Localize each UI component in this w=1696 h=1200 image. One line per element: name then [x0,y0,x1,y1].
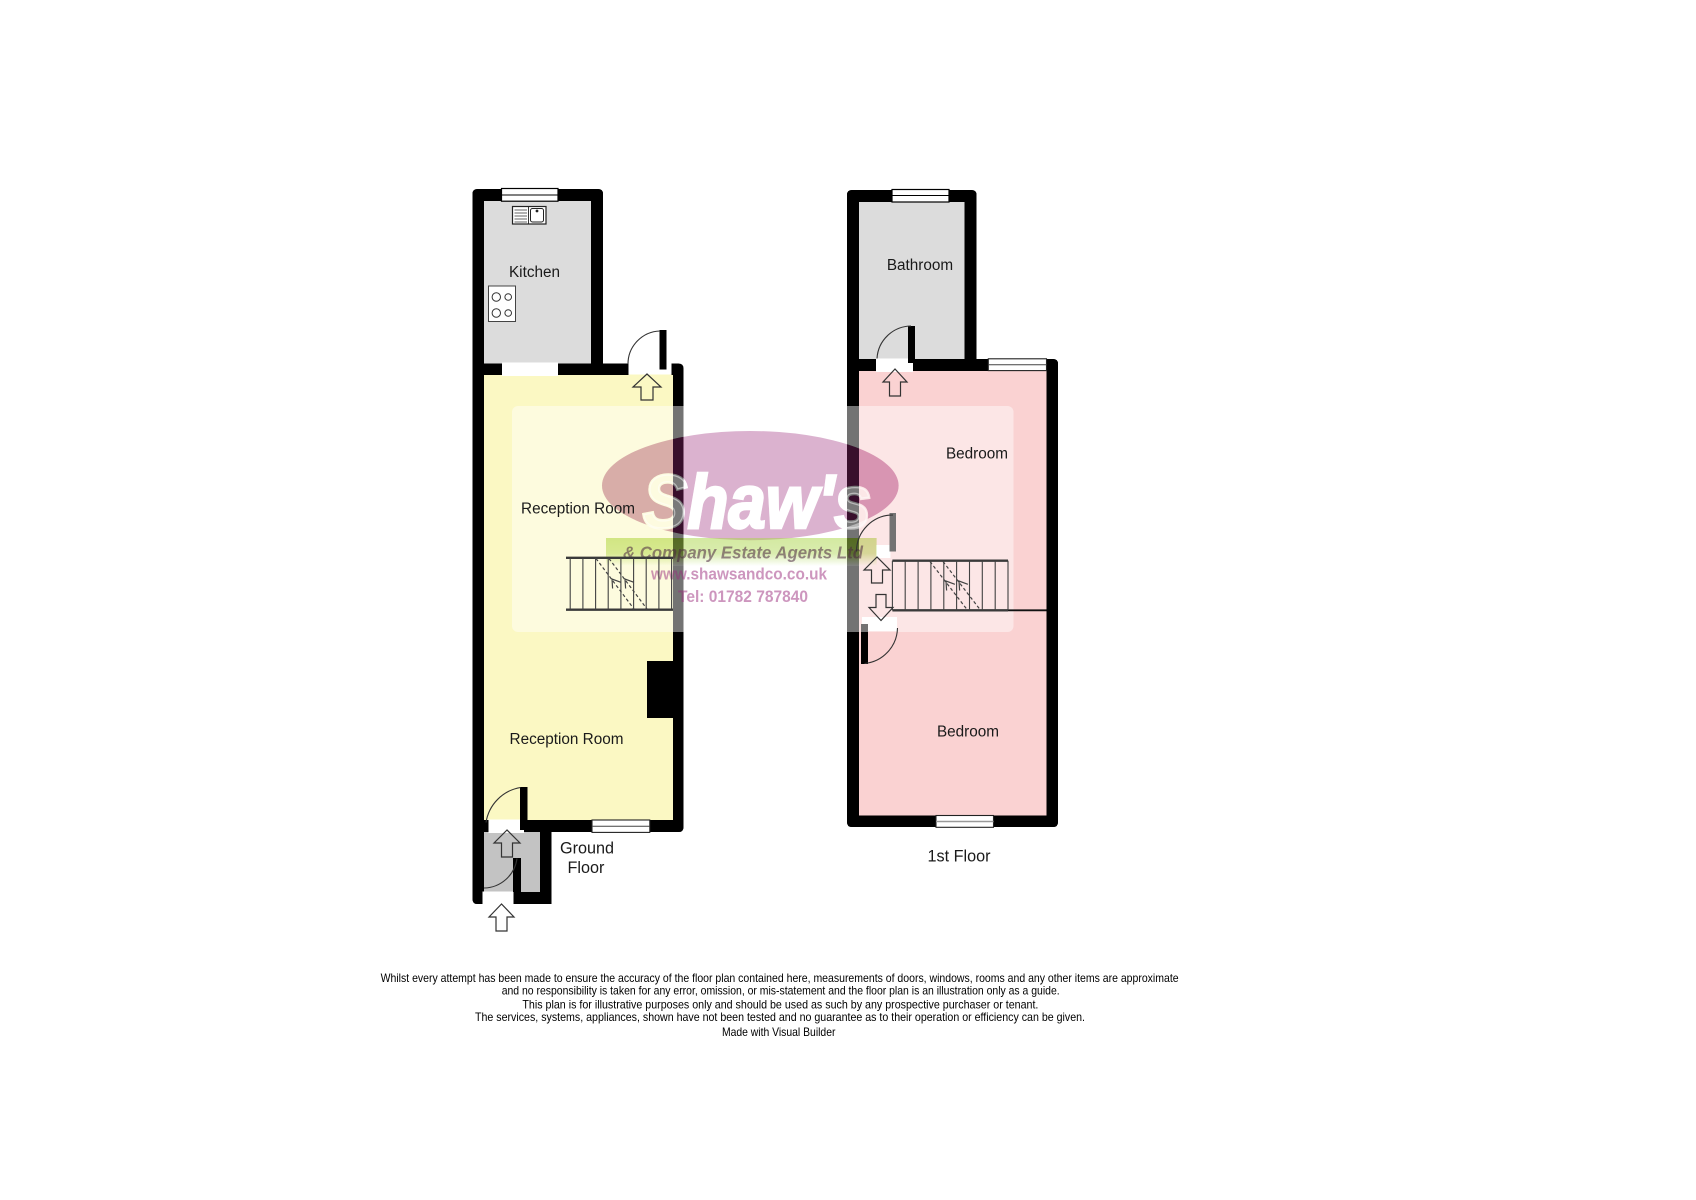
svg-text:Reception Room: Reception Room [510,731,624,748]
svg-text:Shaw's: Shaw's [643,460,872,545]
svg-text:Kitchen: Kitchen [509,264,560,281]
svg-text:Ground: Ground [560,840,614,858]
svg-text:Bathroom: Bathroom [887,257,953,274]
svg-text:1st Floor: 1st Floor [928,848,992,866]
svg-text:Reception Room: Reception Room [521,501,635,518]
svg-text:and no responsibility is taken: and no responsibility is taken for any e… [502,984,1060,998]
svg-text:www.shawsandco.co.uk: www.shawsandco.co.uk [650,565,827,584]
svg-text:Tel: 01782 787840: Tel: 01782 787840 [678,587,808,606]
svg-text:The services, systems, applian: The services, systems, appliances, shown… [475,1010,1085,1024]
svg-text:Made with Visual Builder: Made with Visual Builder [722,1025,836,1039]
svg-text:Bedroom: Bedroom [946,446,1008,463]
svg-text:Bedroom: Bedroom [937,724,999,741]
svg-text:Floor: Floor [568,859,605,877]
